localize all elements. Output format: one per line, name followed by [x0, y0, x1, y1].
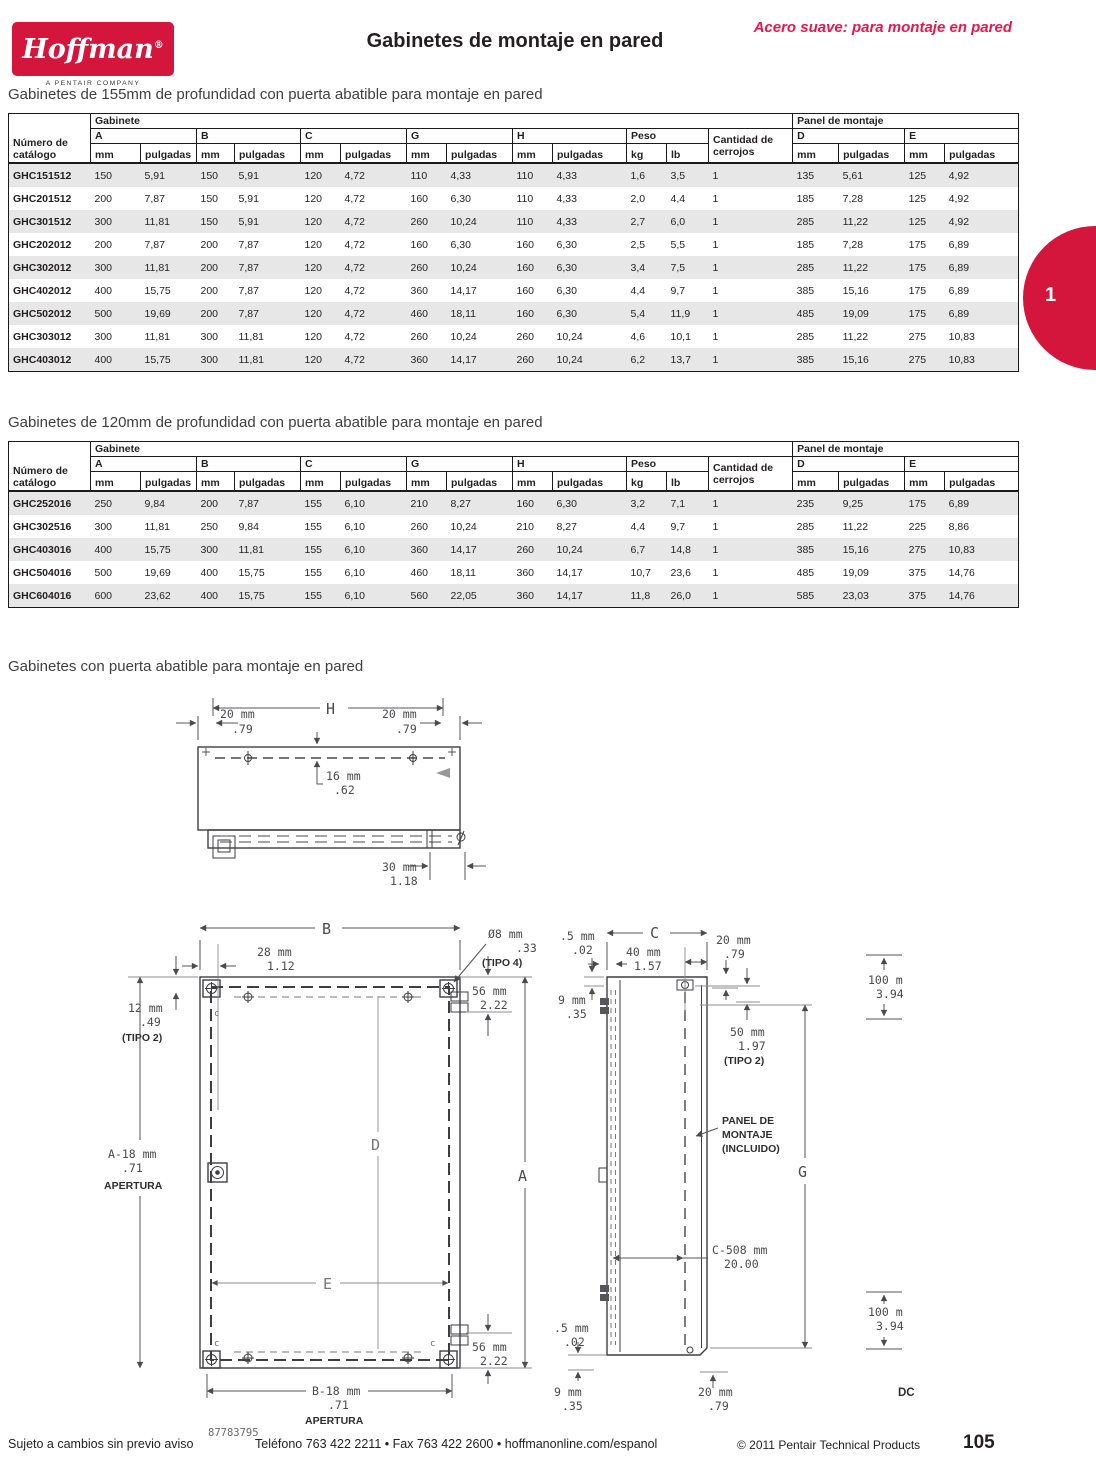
value-cell: 6,30 — [447, 233, 513, 256]
dim-label-e: E — [323, 1275, 332, 1293]
value-cell: 10,24 — [553, 325, 627, 348]
value-cell: 4,72 — [341, 163, 407, 187]
value-cell: 7,87 — [235, 491, 301, 515]
value-cell: 5,61 — [839, 163, 905, 187]
unit-header: pulgadas — [447, 472, 513, 492]
column-header-catalog: Número de catálogo — [9, 114, 91, 164]
value-cell: 360 — [407, 538, 447, 561]
value-cell: 6,89 — [945, 302, 1019, 325]
catalog-number-cell: GHC502012 — [9, 302, 91, 325]
value-cell: 1 — [709, 348, 793, 372]
value-cell: 15,75 — [141, 279, 197, 302]
value-cell: 125 — [905, 163, 945, 187]
dim-label-g: G — [798, 1163, 807, 1181]
value-cell: 260 — [513, 325, 553, 348]
value-cell: 155 — [301, 515, 341, 538]
value-cell: 200 — [91, 233, 141, 256]
footer-copyright: © 2011 Pentair Technical Products — [737, 1438, 920, 1452]
value-cell: 400 — [197, 561, 235, 584]
dim-56mm-bottom: 56 mm — [472, 1340, 507, 1354]
value-cell: 110 — [513, 210, 553, 233]
table-row: GHC50201250019,692007,871204,7246018,111… — [9, 302, 1019, 325]
value-cell: 19,69 — [141, 561, 197, 584]
table-120-heading: Gabinetes de 120mm de profundidad con pu… — [8, 414, 543, 431]
value-cell: 135 — [793, 163, 839, 187]
value-cell: 260 — [513, 538, 553, 561]
value-cell: 23,03 — [839, 584, 905, 608]
value-cell: 260 — [407, 325, 447, 348]
dim-a18-apertura: APERTURA — [104, 1180, 163, 1192]
table-155-heading: Gabinetes de 155mm de profundidad con pu… — [8, 86, 543, 103]
value-cell: 11,8 — [627, 584, 667, 608]
value-cell: 560 — [407, 584, 447, 608]
value-cell: 7,87 — [141, 187, 197, 210]
value-cell: 160 — [513, 491, 553, 515]
value-cell: 3,4 — [627, 256, 667, 279]
unit-header: mm — [407, 472, 447, 492]
value-cell: 120 — [301, 348, 341, 372]
value-cell: 4,72 — [341, 233, 407, 256]
value-cell: 275 — [905, 325, 945, 348]
value-cell: 4,72 — [341, 279, 407, 302]
value-cell: 23,62 — [141, 584, 197, 608]
column-header-h: H — [513, 129, 627, 144]
value-cell: 225 — [905, 515, 945, 538]
dim-05in-top: .02 — [572, 943, 593, 957]
catalog-number-cell: GHC302516 — [9, 515, 91, 538]
value-cell: 9,84 — [141, 491, 197, 515]
value-cell: 4,33 — [553, 210, 627, 233]
value-cell: 7,28 — [839, 187, 905, 210]
value-cell: 2,0 — [627, 187, 667, 210]
dim-12mm: 12 mm — [128, 1001, 163, 1015]
dim-9in-top: .35 — [566, 1007, 587, 1021]
value-cell: 275 — [905, 538, 945, 561]
dim-20mm-left: 20 mm — [220, 707, 255, 721]
value-cell: 175 — [905, 256, 945, 279]
value-cell: 585 — [793, 584, 839, 608]
value-cell: 260 — [407, 515, 447, 538]
value-cell: 360 — [407, 348, 447, 372]
value-cell: 10,83 — [945, 538, 1019, 561]
value-cell: 375 — [905, 584, 945, 608]
value-cell: 260 — [407, 256, 447, 279]
value-cell: 14,17 — [447, 538, 513, 561]
corner-label-c: c — [430, 1339, 435, 1349]
value-cell: 250 — [91, 491, 141, 515]
column-header-e: E — [905, 129, 1019, 144]
column-header-b: B — [197, 457, 301, 472]
value-cell: 11,81 — [235, 325, 301, 348]
value-cell: 1 — [709, 491, 793, 515]
value-cell: 110 — [513, 163, 553, 187]
value-cell: 6,30 — [553, 256, 627, 279]
unit-header: pulgadas — [839, 472, 905, 492]
unit-header: pulgadas — [235, 144, 301, 164]
value-cell: 6,10 — [341, 561, 407, 584]
value-cell: 15,75 — [141, 538, 197, 561]
unit-header: pulgadas — [141, 472, 197, 492]
value-cell: 6,30 — [447, 187, 513, 210]
value-cell: 1 — [709, 233, 793, 256]
catalog-number-cell: GHC252016 — [9, 491, 91, 515]
dim-b18-in: .71 — [328, 1398, 349, 1412]
group-header-panel: Panel de montaje — [793, 114, 1019, 129]
table-row: GHC1515121505,911505,911204,721104,33110… — [9, 163, 1019, 187]
value-cell: 10,24 — [553, 538, 627, 561]
value-cell: 11,22 — [839, 515, 905, 538]
unit-header: mm — [197, 144, 235, 164]
column-header-catalog: Número de catálogo — [9, 442, 91, 492]
top-view-cabinet-outline — [198, 747, 465, 858]
value-cell: 150 — [197, 187, 235, 210]
value-cell: 7,87 — [235, 279, 301, 302]
value-cell: 285 — [793, 325, 839, 348]
table-155mm: Número de catálogo Gabinete Panel de mon… — [8, 113, 1019, 372]
table-row: GHC40301640015,7530011,811556,1036014,17… — [9, 538, 1019, 561]
dim-20in-right: .79 — [396, 722, 417, 736]
value-cell: 4,72 — [341, 256, 407, 279]
value-cell: 120 — [301, 256, 341, 279]
value-cell: 10,1 — [667, 325, 709, 348]
value-cell: 120 — [301, 279, 341, 302]
catalog-number-cell: GHC403016 — [9, 538, 91, 561]
table-row: GHC30151230011,811505,911204,7226010,241… — [9, 210, 1019, 233]
value-cell: 460 — [407, 302, 447, 325]
value-cell: 160 — [407, 233, 447, 256]
catalog-number-cell: GHC403012 — [9, 348, 91, 372]
column-header-g: G — [407, 457, 513, 472]
table-row: GHC2520162509,842007,871556,102108,27160… — [9, 491, 1019, 515]
dim-12in: .49 — [140, 1015, 161, 1029]
column-header-d: D — [793, 129, 905, 144]
catalog-page: Hoffman® A PENTAIR COMPANY Gabinetes de … — [0, 0, 1096, 1468]
value-cell: 8,27 — [447, 491, 513, 515]
catalog-number-cell: GHC202012 — [9, 233, 91, 256]
value-cell: 26,0 — [667, 584, 709, 608]
unit-header: mm — [793, 144, 839, 164]
unit-header: mm — [301, 472, 341, 492]
value-cell: 11,81 — [141, 210, 197, 233]
value-cell: 9,7 — [667, 279, 709, 302]
catalog-number-cell: GHC151512 — [9, 163, 91, 187]
value-cell: 4,33 — [553, 187, 627, 210]
unit-header: pulgadas — [341, 472, 407, 492]
drawings-heading: Gabinetes con puerta abatible para monta… — [8, 658, 363, 675]
value-cell: 4,92 — [945, 163, 1019, 187]
value-cell: 160 — [513, 233, 553, 256]
value-cell: 22,05 — [447, 584, 513, 608]
unit-header: pulgadas — [945, 144, 1019, 164]
footer-contact: Teléfono 763 422 2211 • Fax 763 422 2600… — [255, 1437, 657, 1451]
value-cell: 14,76 — [945, 584, 1019, 608]
dim-28mm: 28 mm — [257, 945, 292, 959]
detail-pointer-arrow — [436, 768, 450, 778]
unit-header: mm — [407, 144, 447, 164]
dim-label-d: D — [371, 1136, 380, 1154]
value-cell: 19,09 — [839, 561, 905, 584]
value-cell: 160 — [513, 279, 553, 302]
value-cell: 11,22 — [839, 256, 905, 279]
value-cell: 155 — [301, 491, 341, 515]
value-cell: 4,33 — [553, 163, 627, 187]
value-cell: 110 — [513, 187, 553, 210]
value-cell: 120 — [301, 325, 341, 348]
dim-label-b: B — [322, 920, 331, 938]
corner-label-c: c — [214, 1339, 219, 1349]
group-header-gabinete: Gabinete — [91, 114, 793, 129]
value-cell: 5,91 — [235, 187, 301, 210]
value-cell: 14,17 — [447, 279, 513, 302]
value-cell: 7,87 — [235, 256, 301, 279]
value-cell: 5,4 — [627, 302, 667, 325]
value-cell: 260 — [407, 210, 447, 233]
value-cell: 6,10 — [341, 491, 407, 515]
value-cell: 15,75 — [235, 561, 301, 584]
value-cell: 4,72 — [341, 187, 407, 210]
dim-9in-bottom: .35 — [562, 1399, 583, 1413]
value-cell: 200 — [197, 491, 235, 515]
value-cell: 200 — [197, 233, 235, 256]
section-tab-number: 1 — [1045, 284, 1056, 307]
value-cell: 1 — [709, 210, 793, 233]
dim-label-c: C — [650, 924, 659, 942]
registered-mark: ® — [154, 40, 164, 51]
panel-label-1: PANEL DE — [722, 1115, 774, 1127]
value-cell: 160 — [513, 256, 553, 279]
value-cell: 11,81 — [141, 325, 197, 348]
catalog-number-cell: GHC201512 — [9, 187, 91, 210]
value-cell: 385 — [793, 348, 839, 372]
side-view-cabinet-outline — [599, 977, 707, 1355]
value-cell: 235 — [793, 491, 839, 515]
dim-50-tipo2: (TIPO 2) — [724, 1055, 764, 1067]
column-header-c: C — [301, 129, 407, 144]
column-header-a: A — [91, 457, 197, 472]
value-cell: 11,81 — [235, 538, 301, 561]
value-cell: 360 — [513, 584, 553, 608]
value-cell: 11,22 — [839, 210, 905, 233]
dim-20mm-top: 20 mm — [716, 933, 751, 947]
dim-16in: .62 — [334, 783, 355, 797]
unit-header: mm — [91, 144, 141, 164]
category-tagline: Acero suave: para montaje en pared — [754, 19, 1012, 36]
dim-9mm-top: 9 mm — [558, 993, 586, 1007]
unit-header: pulgadas — [553, 144, 627, 164]
dc-label: DC — [898, 1387, 915, 1399]
dim-28in: 1.12 — [267, 959, 295, 973]
dim-40mm: 40 mm — [626, 945, 661, 959]
value-cell: 14,8 — [667, 538, 709, 561]
value-cell: 500 — [91, 302, 141, 325]
value-cell: 185 — [793, 187, 839, 210]
dim-20mm-right: 20 mm — [382, 707, 417, 721]
value-cell: 4,92 — [945, 210, 1019, 233]
value-cell: 385 — [793, 538, 839, 561]
front-view-cabinet-outline — [200, 977, 468, 1368]
value-cell: 125 — [905, 210, 945, 233]
value-cell: 19,69 — [141, 302, 197, 325]
value-cell: 11,22 — [839, 325, 905, 348]
value-cell: 360 — [407, 279, 447, 302]
value-cell: 120 — [301, 302, 341, 325]
table-row: GHC40201240015,752007,871204,7236014,171… — [9, 279, 1019, 302]
dim-label-h: H — [326, 700, 335, 718]
value-cell: 120 — [301, 233, 341, 256]
value-cell: 300 — [91, 325, 141, 348]
dim-b18: B-18 mm — [312, 1384, 361, 1398]
value-cell: 6,10 — [341, 538, 407, 561]
column-header-g: G — [407, 129, 513, 144]
panel-label-2: MONTAJE — [722, 1129, 773, 1141]
dim-20mm-bottom: 20 mm — [698, 1385, 733, 1399]
dim-9mm-bottom: 9 mm — [554, 1385, 582, 1399]
drawing-number: 87783795 — [208, 1427, 259, 1439]
value-cell: 10,24 — [447, 515, 513, 538]
value-cell: 7,87 — [141, 233, 197, 256]
value-cell: 8,27 — [553, 515, 627, 538]
value-cell: 300 — [197, 538, 235, 561]
dim-20in-left: .79 — [232, 722, 253, 736]
value-cell: 120 — [301, 163, 341, 187]
value-cell: 1 — [709, 279, 793, 302]
value-cell: 1 — [709, 302, 793, 325]
dim-c508-in: 20.00 — [724, 1257, 759, 1271]
dim-50mm: 50 mm — [730, 1025, 765, 1039]
group-header-gabinete: Gabinete — [91, 442, 793, 457]
value-cell: 6,10 — [341, 515, 407, 538]
group-header-panel: Panel de montaje — [793, 442, 1019, 457]
dim-c508: C-508 mm — [712, 1243, 767, 1257]
dim-20in-bottom: .79 — [708, 1399, 729, 1413]
column-header-a: A — [91, 129, 197, 144]
value-cell: 6,89 — [945, 256, 1019, 279]
dim-56in-top: 2.22 — [480, 998, 508, 1012]
value-cell: 120 — [301, 187, 341, 210]
catalog-number-cell: GHC303012 — [9, 325, 91, 348]
unit-header: mm — [91, 472, 141, 492]
catalog-number-cell: GHC504016 — [9, 561, 91, 584]
table-row: GHC50401650019,6940015,751556,1046018,11… — [9, 561, 1019, 584]
value-cell: 160 — [513, 302, 553, 325]
value-cell: 1 — [709, 325, 793, 348]
value-cell: 3,5 — [667, 163, 709, 187]
column-header-peso: Peso — [627, 457, 709, 472]
dim-b18-apertura: APERTURA — [305, 1415, 364, 1427]
value-cell: 6,10 — [341, 584, 407, 608]
value-cell: 175 — [905, 233, 945, 256]
value-cell: 160 — [407, 187, 447, 210]
value-cell: 1 — [709, 256, 793, 279]
value-cell: 150 — [197, 163, 235, 187]
value-cell: 4,72 — [341, 302, 407, 325]
dim-56mm-top: 56 mm — [472, 984, 507, 998]
dim-hole-diameter: Ø8 mm — [488, 927, 523, 941]
hoffman-logo-text: Hoffman® — [22, 34, 164, 65]
value-cell: 7,5 — [667, 256, 709, 279]
value-cell: 4,72 — [341, 210, 407, 233]
value-cell: 13,7 — [667, 348, 709, 372]
table-row: GHC60401660023,6240015,751556,1056022,05… — [9, 584, 1019, 608]
value-cell: 2,7 — [627, 210, 667, 233]
value-cell: 9,84 — [235, 515, 301, 538]
unit-header: kg — [627, 472, 667, 492]
value-cell: 400 — [197, 584, 235, 608]
column-header-b: B — [197, 129, 301, 144]
column-header-e: E — [905, 457, 1019, 472]
unit-header: kg — [627, 144, 667, 164]
value-cell: 1,6 — [627, 163, 667, 187]
dim-05mm-top: .5 mm — [560, 929, 595, 943]
value-cell: 285 — [793, 256, 839, 279]
value-cell: 10,24 — [447, 210, 513, 233]
value-cell: 6,30 — [553, 279, 627, 302]
value-cell: 125 — [905, 187, 945, 210]
top-view-dimensions: H 20 mm .79 20 mm .79 16 mm .62 30 mm 1.… — [176, 698, 486, 888]
dim-12-tipo2: (TIPO 2) — [122, 1032, 162, 1044]
value-cell: 10,24 — [553, 348, 627, 372]
value-cell: 275 — [905, 348, 945, 372]
catalog-number-cell: GHC402012 — [9, 279, 91, 302]
value-cell: 400 — [91, 348, 141, 372]
value-cell: 4,6 — [627, 325, 667, 348]
value-cell: 10,24 — [447, 325, 513, 348]
unit-header: mm — [793, 472, 839, 492]
table-row: GHC2015122007,871505,911204,721606,30110… — [9, 187, 1019, 210]
unit-header: mm — [513, 144, 553, 164]
value-cell: 10,83 — [945, 325, 1019, 348]
value-cell: 6,0 — [667, 210, 709, 233]
value-cell: 185 — [793, 233, 839, 256]
value-cell: 5,91 — [141, 163, 197, 187]
table-row: GHC30251630011,812509,841556,1026010,242… — [9, 515, 1019, 538]
table-row: GHC40301240015,7530011,811204,7236014,17… — [9, 348, 1019, 372]
value-cell: 460 — [407, 561, 447, 584]
value-cell: 285 — [793, 515, 839, 538]
value-cell: 4,72 — [341, 348, 407, 372]
value-cell: 7,28 — [839, 233, 905, 256]
catalog-number-cell: GHC604016 — [9, 584, 91, 608]
value-cell: 6,89 — [945, 491, 1019, 515]
unit-header: pulgadas — [839, 144, 905, 164]
table-120-body: GHC2520162509,842007,871556,102108,27160… — [9, 491, 1019, 608]
top-view-bracket-line — [202, 748, 456, 765]
dim-a18: A-18 mm — [108, 1147, 157, 1161]
value-cell: 300 — [91, 256, 141, 279]
dim-16mm: 16 mm — [326, 769, 361, 783]
value-cell: 400 — [91, 538, 141, 561]
value-cell: 175 — [905, 279, 945, 302]
value-cell: 1 — [709, 515, 793, 538]
value-cell: 11,9 — [667, 302, 709, 325]
value-cell: 7,87 — [235, 302, 301, 325]
value-cell: 7,1 — [667, 491, 709, 515]
column-header-peso: Peso — [627, 129, 709, 144]
side-view-drawing: C .5 mm .02 9 mm .35 40 mm 1.57 20 mm .7… — [550, 900, 1096, 1420]
dim-100mm-bottom: 100 m — [868, 1305, 903, 1319]
value-cell: 1 — [709, 538, 793, 561]
value-cell: 5,91 — [235, 163, 301, 187]
value-cell: 300 — [197, 325, 235, 348]
dim-100in-bottom: 3.94 — [876, 1319, 904, 1333]
unit-header: mm — [905, 144, 945, 164]
value-cell: 1 — [709, 584, 793, 608]
dim-hole-diameter-in: .33 — [516, 941, 537, 955]
value-cell: 10,24 — [447, 256, 513, 279]
value-cell: 250 — [197, 515, 235, 538]
hoffman-logo: Hoffman® — [12, 22, 174, 76]
value-cell: 4,4 — [627, 515, 667, 538]
